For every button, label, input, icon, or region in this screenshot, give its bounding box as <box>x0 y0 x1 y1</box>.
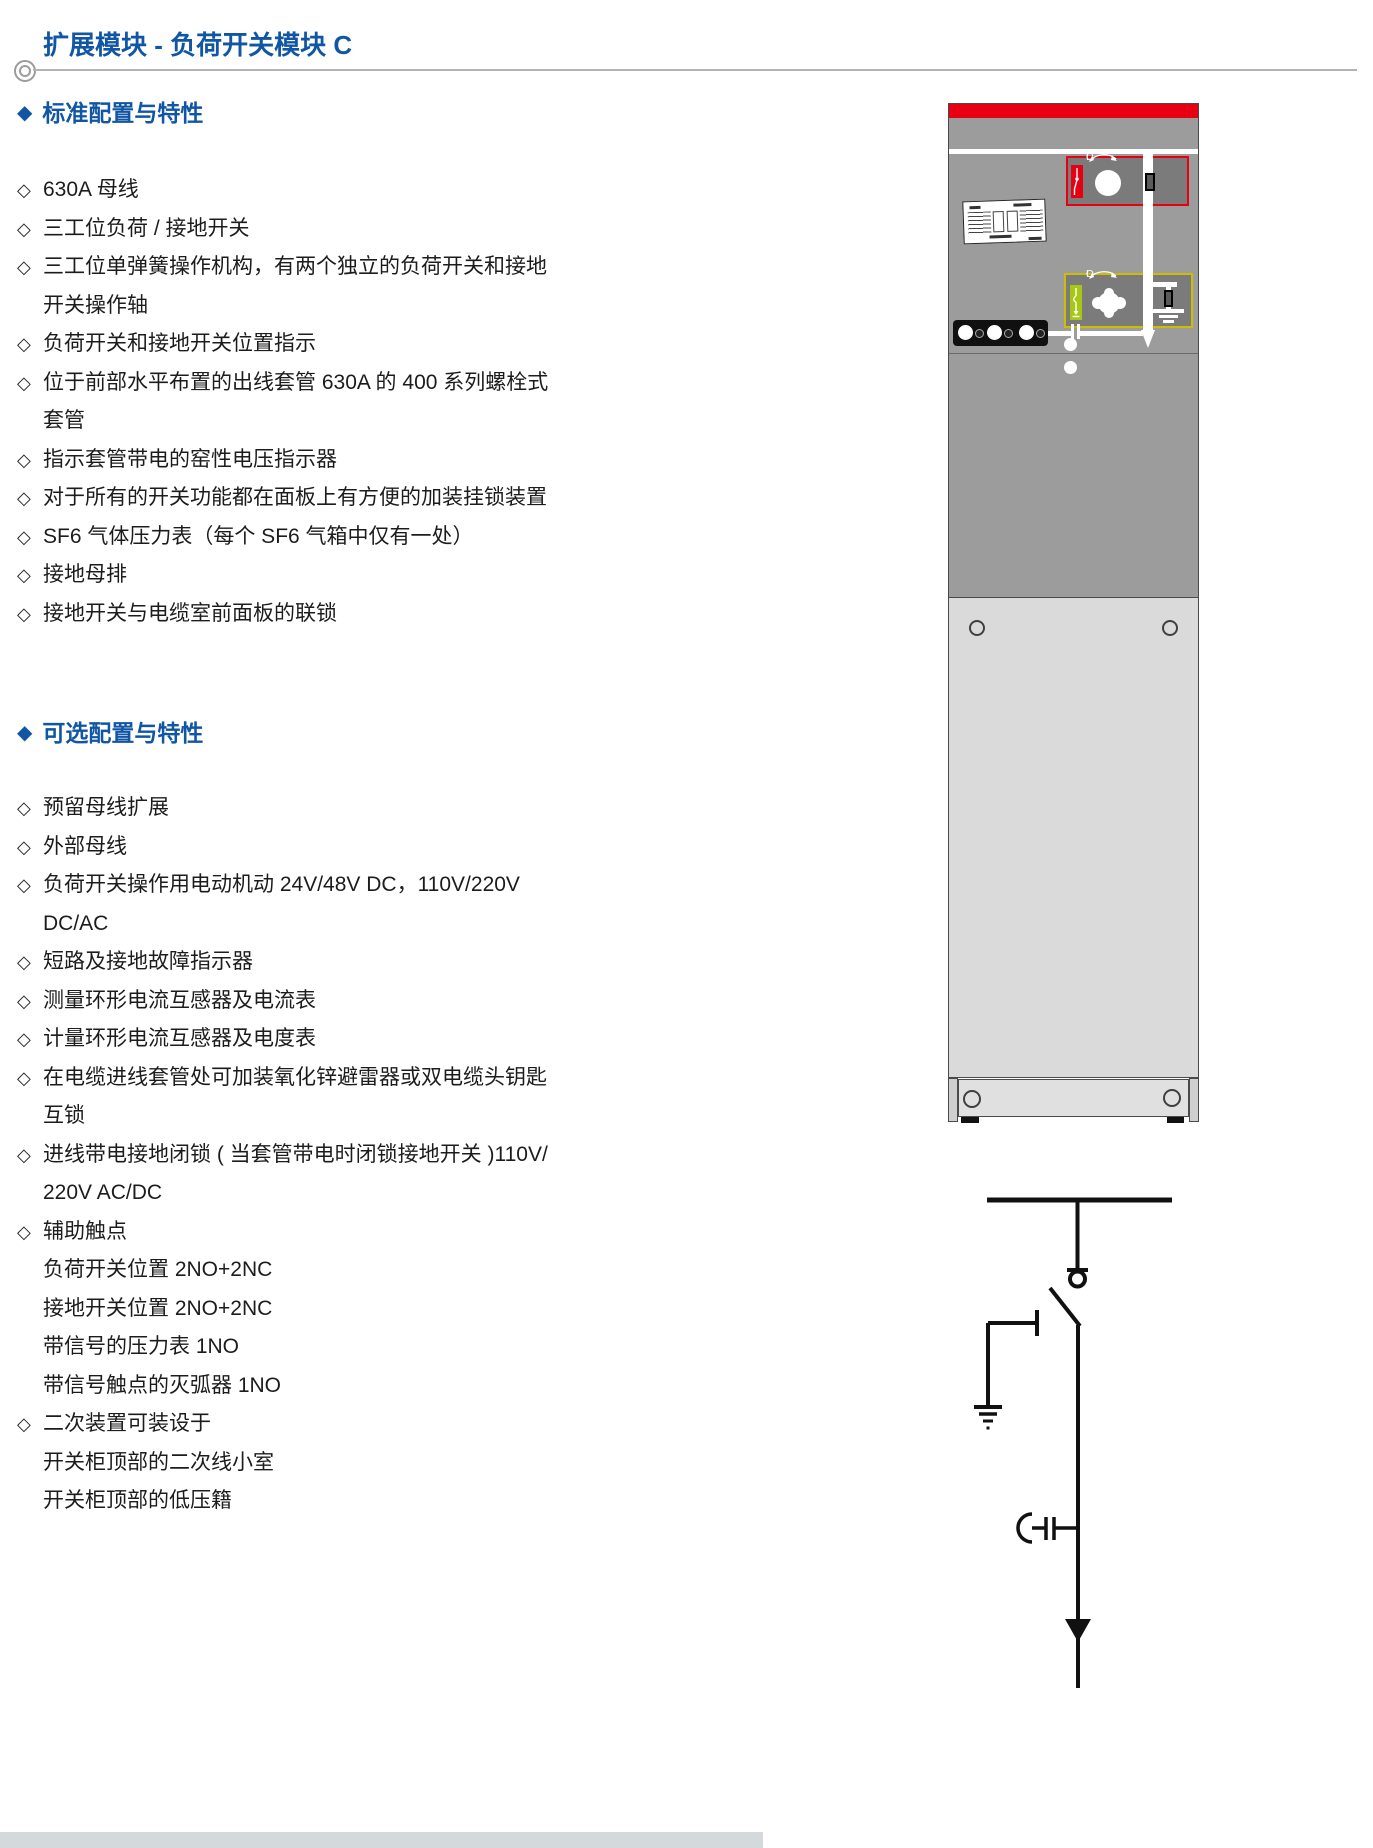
feature-list-item: ◇ 计量环形电流互感器及电度表 <box>17 1020 557 1059</box>
header-rule <box>33 69 1357 71</box>
bushing-port <box>987 325 1002 340</box>
hollow-diamond-bullet-icon: ◇ <box>17 518 43 557</box>
base-hole <box>1163 1089 1181 1107</box>
switchgear-cabinet-illustration: O I <box>948 103 1199 1125</box>
cabinet-cable-compartment-cover <box>948 597 1199 1078</box>
feature-text: SF6 气体压力表（每个 SF6 气箱中仅有一处） <box>43 518 557 557</box>
panel-screw <box>1162 620 1178 636</box>
rotation-arc-icon <box>1086 268 1120 282</box>
page-title: 扩展模块 - 负荷开关模块 C <box>43 28 352 62</box>
feature-text: 630A 母线 <box>43 171 557 210</box>
terminal-dot <box>975 329 984 338</box>
feature-text: 测量环形电流互感器及电流表 <box>43 982 557 1021</box>
cabinet-mid-panel <box>948 354 1199 597</box>
ground-bar-3 <box>1163 320 1174 323</box>
strip-link-line <box>1048 331 1071 336</box>
hollow-diamond-bullet-icon: ◇ <box>17 595 43 634</box>
bus-arrow-icon <box>1141 330 1155 348</box>
terminal-dot <box>1004 329 1013 338</box>
base-panel <box>958 1079 1189 1117</box>
hollow-diamond-bullet-icon: ◇ <box>17 866 43 943</box>
earthing-switch-knob <box>1092 288 1126 318</box>
feature-list-item: ◇ 预留母线扩展 <box>17 789 557 828</box>
indicator-port <box>1064 361 1077 374</box>
bus-connector <box>1145 173 1155 191</box>
feature-list-item: ◇ 接地母排 <box>17 556 557 595</box>
earth-branch-connector <box>1164 290 1173 307</box>
feature-text: 短路及接地故障指示器 <box>43 943 557 982</box>
feature-text: 二次装置可装设于 开关柜顶部的二次线小室 开关柜顶部的低压籍 <box>43 1405 557 1521</box>
cabinet-foot <box>1167 1117 1184 1123</box>
feature-text: 位于前部水平布置的出线套管 630A 的 400 系列螺栓式 套管 <box>43 364 557 441</box>
capacitor-plate <box>1071 324 1074 339</box>
ground-symbol <box>974 1407 1002 1428</box>
ground-bar-1 <box>1153 309 1184 313</box>
feature-list-item: ◇ 指示套管带电的窑性电压指示器 <box>17 441 557 480</box>
feature-text: 接地母排 <box>43 556 557 595</box>
catalog-page: 扩展模块 - 负荷开关模块 C ◆ 标准配置与特性 ◇ 630A 母线 ◇ 三工… <box>0 0 1373 1848</box>
feature-list-item: ◇ 进线带电接地闭锁 ( 当套管带电时闭锁接地开关 )110V/ 220V AC… <box>17 1136 557 1213</box>
load-switch-knob <box>1095 170 1121 196</box>
feature-text: 进线带电接地闭锁 ( 当套管带电时闭锁接地开关 )110V/ 220V AC/D… <box>43 1136 557 1213</box>
hollow-diamond-bullet-icon: ◇ <box>17 171 43 210</box>
feature-list-item: ◇ 三工位单弹簧操作机构，有两个独立的负荷开关和接地 开关操作轴 <box>17 248 557 325</box>
hollow-diamond-bullet-icon: ◇ <box>17 1020 43 1059</box>
hollow-diamond-bullet-icon: ◇ <box>17 1213 43 1406</box>
hollow-diamond-bullet-icon: ◇ <box>17 479 43 518</box>
hollow-diamond-bullet-icon: ◇ <box>17 789 43 828</box>
standard-features-list: ◇ 630A 母线 ◇ 三工位负荷 / 接地开关 ◇ 三工位单弹簧操作机构，有两… <box>17 171 557 633</box>
section-heading-text: 可选配置与特性 <box>42 718 203 748</box>
feature-text: 负荷开关和接地开关位置指示 <box>43 325 557 364</box>
section-heading-standard: ◆ 标准配置与特性 <box>17 98 203 128</box>
ground-bar-2 <box>1159 315 1178 318</box>
earthing-switch-position-indicator <box>1070 285 1082 320</box>
optional-features-list: ◇ 预留母线扩展 ◇ 外部母线 ◇ 负荷开关操作用电动机动 24V/48V DC… <box>17 789 557 1521</box>
feature-list-item: ◇ 接地开关与电缆室前面板的联锁 <box>17 595 557 634</box>
feature-text: 负荷开关操作用电动机动 24V/48V DC，110V/220V DC/AC <box>43 866 557 943</box>
hollow-diamond-bullet-icon: ◇ <box>17 364 43 441</box>
bushing-port <box>1019 325 1034 340</box>
hollow-diamond-bullet-icon: ◇ <box>17 325 43 364</box>
hollow-diamond-bullet-icon: ◇ <box>17 1136 43 1213</box>
single-line-diagram <box>950 1190 1200 1700</box>
feature-text: 外部母线 <box>43 828 557 867</box>
section-heading-text: 标准配置与特性 <box>42 98 203 128</box>
base-pillar-left <box>948 1078 958 1122</box>
base-hole <box>963 1090 981 1108</box>
section-heading-optional: ◆ 可选配置与特性 <box>17 718 203 748</box>
hollow-diamond-bullet-icon: ◇ <box>17 828 43 867</box>
capacitive-indicator-symbol <box>1018 1514 1078 1542</box>
feature-list-item: ◇ 短路及接地故障指示器 <box>17 943 557 982</box>
feature-text: 计量环形电流互感器及电度表 <box>43 1020 557 1059</box>
panel-screw <box>969 620 985 636</box>
cabinet-top-red-bar <box>948 103 1199 118</box>
hollow-diamond-bullet-icon: ◇ <box>17 943 43 982</box>
indicator-port <box>1064 338 1077 351</box>
hollow-diamond-bullet-icon: ◇ <box>17 556 43 595</box>
earth-branch-line <box>1153 282 1177 287</box>
feature-text: 三工位单弹簧操作机构，有两个独立的负荷开关和接地 开关操作轴 <box>43 248 557 325</box>
hollow-diamond-bullet-icon: ◇ <box>17 248 43 325</box>
base-pillar-right <box>1189 1078 1199 1122</box>
hollow-diamond-bullet-icon: ◇ <box>17 1405 43 1521</box>
switch-contact-circle <box>1070 1272 1085 1287</box>
feature-text: 指示套管带电的窑性电压指示器 <box>43 441 557 480</box>
hollow-diamond-bullet-icon: ◇ <box>17 441 43 480</box>
hollow-diamond-bullet-icon: ◇ <box>17 982 43 1021</box>
header-ring-icon <box>14 60 36 82</box>
on-label: I <box>1086 270 1089 280</box>
feature-text: 对于所有的开关功能都在面板上有方便的加装挂锁装置 <box>43 479 557 518</box>
cabinet-foot <box>961 1117 979 1123</box>
feature-text: 接地开关与电缆室前面板的联锁 <box>43 595 557 634</box>
footer-bar <box>0 1832 763 1848</box>
feature-list-item: ◇ 测量环形电流互感器及电流表 <box>17 982 557 1021</box>
feature-list-item: ◇ 对于所有的开关功能都在面板上有方便的加装挂锁装置 <box>17 479 557 518</box>
on-label: I <box>1086 153 1089 163</box>
feature-text: 辅助触点 负荷开关位置 2NO+2NC 接地开关位置 2NO+2NC 带信号的压… <box>43 1213 557 1406</box>
feature-text: 在电缆进线套管处可加装氧化锌避雷器或双电缆头钥匙 互锁 <box>43 1059 557 1136</box>
feature-list-item: ◇ 辅助触点 负荷开关位置 2NO+2NC 接地开关位置 2NO+2NC 带信号… <box>17 1213 557 1406</box>
feature-list-item: ◇ SF6 气体压力表（每个 SF6 气箱中仅有一处） <box>17 518 557 557</box>
feature-list-item: ◇ 在电缆进线套管处可加装氧化锌避雷器或双电缆头钥匙 互锁 <box>17 1059 557 1136</box>
cabinet-top-gray-strip <box>948 118 1199 149</box>
bushing-terminal-strip <box>953 320 1048 346</box>
hollow-diamond-bullet-icon: ◇ <box>17 1059 43 1136</box>
rotation-arc-icon <box>1086 151 1120 165</box>
load-switch-position-indicator <box>1071 165 1083 198</box>
feature-list-item: ◇ 三工位负荷 / 接地开关 <box>17 210 557 249</box>
feature-list-item: ◇ 630A 母线 <box>17 171 557 210</box>
feature-text: 三工位负荷 / 接地开关 <box>43 210 557 249</box>
load-switch-operation-area <box>1066 156 1189 206</box>
cable-arrow-icon <box>1065 1619 1091 1642</box>
hollow-diamond-bullet-icon: ◇ <box>17 210 43 249</box>
cabinet-nameplate <box>962 199 1046 245</box>
filled-diamond-icon: ◆ <box>17 718 32 748</box>
feature-list-item: ◇ 位于前部水平布置的出线套管 630A 的 400 系列螺栓式 套管 <box>17 364 557 441</box>
terminal-dot <box>1036 329 1045 338</box>
feature-list-item: ◇ 外部母线 <box>17 828 557 867</box>
filled-diamond-icon: ◆ <box>17 98 32 128</box>
feature-list-item: ◇ 二次装置可装设于 开关柜顶部的二次线小室 开关柜顶部的低压籍 <box>17 1405 557 1521</box>
feature-list-item: ◇ 负荷开关和接地开关位置指示 <box>17 325 557 364</box>
strip-link-line <box>1080 331 1143 336</box>
feature-text: 预留母线扩展 <box>43 789 557 828</box>
load-switch-blade <box>1050 1288 1080 1326</box>
feature-list-item: ◇ 负荷开关操作用电动机动 24V/48V DC，110V/220V DC/AC <box>17 866 557 943</box>
bushing-port <box>958 325 973 340</box>
